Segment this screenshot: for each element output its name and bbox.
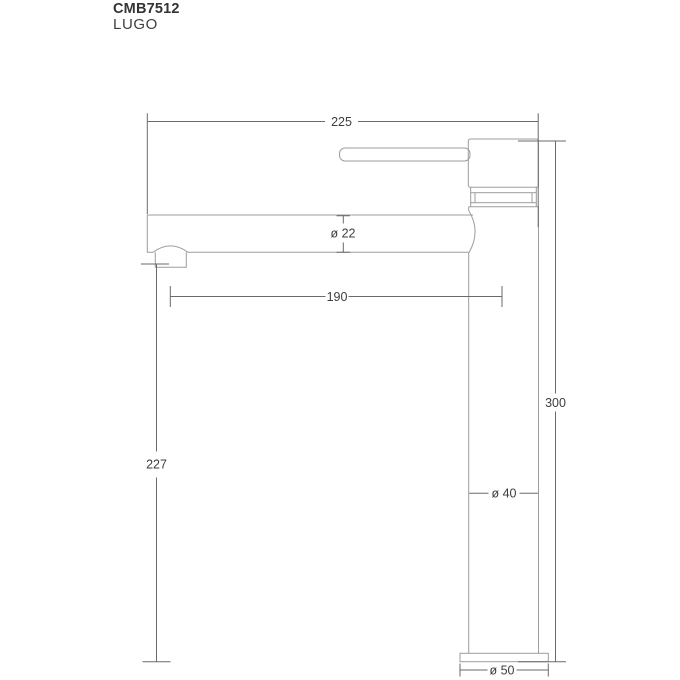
dimension-height-to-spout: 227 — [141, 264, 171, 662]
dimension-reach-to-center: 190 — [170, 286, 502, 307]
faucet-body-column — [469, 207, 539, 654]
faucet-collar-outline — [471, 193, 537, 203]
dim-label-reach-to-center: 190 — [327, 290, 348, 304]
dim-label-overall-height: 300 — [545, 396, 566, 410]
faucet-technical-drawing: 225 ø 22 190 227 300 ø 40 — [0, 0, 680, 680]
dim-label-spout-diameter: ø 22 — [330, 227, 355, 241]
faucet-base-plate — [460, 653, 548, 661]
faucet-neck-upper — [471, 187, 537, 192]
faucet-head-outline — [468, 139, 538, 187]
dimension-overall-reach: 225 — [147, 113, 538, 227]
dim-label-overall-reach: 225 — [331, 115, 352, 129]
dim-label-height-to-spout: 227 — [146, 458, 167, 472]
faucet-outline — [147, 139, 548, 662]
dimension-base-diameter: ø 50 — [460, 663, 548, 677]
dim-label-base-diameter: ø 50 — [489, 663, 514, 677]
dimension-spout-diameter: ø 22 — [330, 216, 355, 253]
faucet-spout-joint-arc — [469, 211, 475, 254]
dimension-overall-height: 300 — [518, 141, 566, 662]
faucet-aerator-dome — [153, 246, 188, 252]
faucet-lever-outline — [340, 148, 471, 161]
faucet-spout-outline — [147, 215, 473, 252]
dim-label-body-diameter: ø 40 — [491, 487, 516, 501]
technical-drawing-page: CMB7512 LUGO — [0, 0, 680, 680]
faucet-collar-steps — [475, 193, 532, 203]
dimension-225-extension-lines — [147, 113, 538, 227]
faucet-aerator-box — [155, 252, 186, 267]
faucet-neck-lower — [471, 203, 537, 207]
dimension-body-diameter: ø 40 — [469, 487, 538, 501]
